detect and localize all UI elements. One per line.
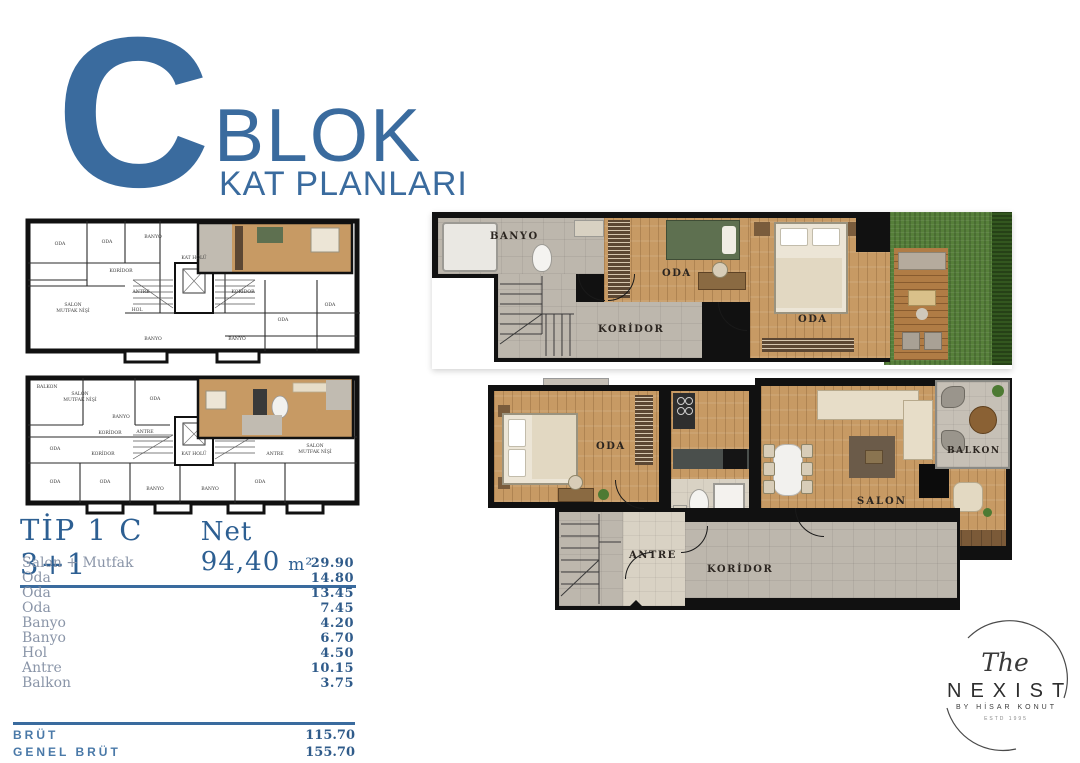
upper-banyo-floor: BANYO [438,218,604,274]
lower-oda-label: ODA [596,441,626,452]
keyplan2-label-salon2-b: MUTFAK NİŞİ [298,448,332,455]
lower-stairs [559,512,623,606]
stove [673,393,695,429]
dining-chair-6 [801,480,813,494]
row-name: Balkon [22,676,71,691]
keyplan2-label-koridor-b: KORİDOR [91,450,115,457]
row-value: 29.90 [311,556,354,571]
keyplan2-label-oda-d: ODA [100,479,111,485]
salon-plant [983,508,992,517]
row-value: 10.15 [311,661,354,676]
lower-bed [502,413,578,485]
keyplan2-label-antre-a: ANTRE [135,429,153,435]
balkon-plant [992,385,1004,397]
area-rows: Salon + Mutfak29.90 Oda14.80 Oda13.45 Od… [22,556,354,691]
dining-set [763,436,809,502]
keyplan1-label-banyo-b: BANYO [144,336,162,342]
keyplan1-label-koridor-a: KORİDOR [109,267,133,274]
table-row: Oda13.45 [22,586,354,601]
dining-chair-5 [801,462,813,476]
keyplan2-label-koridor-a: KORİDOR [98,429,122,436]
floorplan-sheet: C BLOK KAT PLANLARI [0,0,1080,763]
total-row-brut: BRÜT115.70 [13,728,355,745]
keyplan1-label-oda-b: ODA [102,239,113,245]
dining-chair-2 [763,462,775,476]
outdoor-sofa [898,252,946,270]
row-value: 13.45 [311,586,354,601]
lower-koridor-label: KORİDOR [707,564,773,575]
key-plan-lower-drawing: BALKON SALON MUTFAK NİŞİ ODA BANYO KORİD… [25,375,360,523]
total-value: 155.70 [305,745,355,760]
keyplan1-label-katholu: KAT HOLÜ [181,254,206,261]
terrace-deck [894,248,948,360]
total-value: 115.70 [305,728,355,743]
keyplan2-label-oda-b: ODA [50,446,61,452]
dining-chair-3 [763,480,775,494]
oda2-blanket [776,258,842,308]
burner-3 [677,407,685,415]
outdoor-pouf [916,308,928,320]
table-row: Salon + Mutfak29.90 [22,556,354,571]
keyplan1-label-oda-a: ODA [55,241,66,247]
upper-oda1-label: ODA [662,268,692,279]
table-row: Antre10.15 [22,661,354,676]
upper-stairs [498,274,576,358]
unit-plan-upper: BANYO KORİDOR [432,212,1012,369]
table-row: Banyo6.70 [22,631,354,646]
keyplan2-label-salon1: SALON [71,391,88,397]
row-name: Banyo [22,631,66,646]
keyplan1-label-banyo-a: BANYO [144,234,162,240]
oda2-wardrobe [762,338,854,352]
upper-banyo-label: BANYO [490,231,539,242]
row-value: 7.45 [320,601,354,616]
burner-4 [685,407,693,415]
entrance-arrow-icon [627,600,645,609]
totals-section: BRÜT115.70 GENEL BRÜT155.70 [13,722,355,762]
logo-established: ESTD 1995 [938,716,1072,722]
row-name: Salon + Mutfak [22,556,133,571]
row-value: 6.70 [320,631,354,646]
lower-pillow-2 [508,449,526,477]
upper-koridor-label: KORİDOR [598,324,664,335]
unit-plan-lower: ODA BANYO [485,378,1012,612]
lower-desk [558,488,594,502]
dining-chair-1 [763,444,775,458]
keyplan2-label-salon1-b: SALON [306,443,323,449]
key-plan-upper-floor: ODA ODA BANYO KORİDOR ANTRE KAT HOLÜ KOR… [25,218,360,368]
table-row: Balkon3.75 [22,676,354,691]
salon-label-1: SALON [857,496,907,507]
burner-2 [685,397,693,405]
lower-stairs-drawing [559,512,623,606]
keyplan2-label-oda-c: ODA [50,479,61,485]
keyplan1-label-salon2: MUTFAK NİŞİ [56,307,90,314]
keyplan1-label-salon1: SALON [64,302,81,308]
total-row-genel-brut: GENEL BRÜT155.70 [13,745,355,762]
rug [849,436,895,478]
oda2-pillow-1 [780,228,808,246]
oda1-bed [666,220,740,260]
lower-blanket [532,415,576,479]
oda2-nightstand-1 [754,222,770,236]
oda2-pillow-2 [812,228,840,246]
keyplan2-label-banyo-b: BANYO [146,486,164,492]
keyplan2-label-oda-a: ODA [150,396,161,402]
upper-wall-column [856,212,890,252]
keyplan1-label-banyo-c: BANYO [228,336,246,342]
table-row: Oda7.45 [22,601,354,616]
keyplan1-label-oda-d: ODA [325,302,336,308]
balkon-chair-1 [941,386,965,408]
table-row: Oda14.80 [22,571,354,586]
keyplan2-label-banyo-a: BANYO [112,414,130,420]
oda1-pillow [722,226,736,254]
hall-walls: ANTRE KORİDOR [555,508,960,610]
fireplace-block [919,464,949,498]
outdoor-table [908,290,936,306]
upper-koridor-floor: KORİDOR [576,302,702,358]
logo-script-the: The [938,648,1072,677]
logo-byline: BY HİSAR KONUT [938,704,1072,711]
kitchen-floor [671,391,749,479]
balkon-label: BALKON [947,446,1001,456]
keyplan1-label-koridor-b: KORİDOR [231,288,255,295]
block-subtitle: KAT PLANLARI [219,167,468,201]
oda1-chair [712,262,728,278]
nexist-logo: The NEXIST BY HİSAR KONUT ESTD 1995 [938,620,1072,760]
total-name: BRÜT [13,728,58,742]
row-name: Oda [22,571,51,586]
keyplan2-label-banyo-c: BANYO [201,486,219,492]
keyplan1-label-hol: HOL [132,307,143,313]
key-plan-lower-floor: BALKON SALON MUTFAK NİŞİ ODA BANYO KORİD… [25,375,360,523]
lower-wardrobe [635,395,653,465]
row-value: 14.80 [311,571,354,586]
row-value: 4.20 [320,616,354,631]
row-name: Antre [22,661,62,676]
keyplan2-label-antre-b: ANTRE [265,451,283,457]
keyplan2-label-oda-e: ODA [255,479,266,485]
bathtub [442,222,498,272]
garden-hedge [992,212,1012,365]
balkon-table [969,406,997,434]
burner-1 [677,397,685,405]
table-row: Banyo4.20 [22,616,354,631]
washbasin [574,220,604,237]
outdoor-chair-1 [902,332,920,350]
outdoor-chair-2 [924,332,942,350]
total-name: GENEL BRÜT [13,745,121,759]
lower-desk-chair [568,475,583,490]
table-row: Hol4.50 [22,646,354,661]
sofa-vertical [903,400,933,460]
fridge [723,449,747,469]
keyplan1-label-antre: ANTRE [131,289,149,295]
row-name: Hol [22,646,47,661]
row-value: 4.50 [320,646,354,661]
keyplan2-label-katholu: KAT HOLÜ [181,450,206,457]
dining-table [773,444,803,496]
keyplan1-label-oda-c: ODA [278,317,289,323]
row-name: Oda [22,601,51,616]
row-value: 3.75 [320,676,354,691]
keyplan2-label-salon2: MUTFAK NİŞİ [63,396,97,403]
block-title: BLOK [214,98,422,173]
row-name: Oda [22,586,51,601]
keyplan2-label-balkon: BALKON [37,384,58,390]
dining-chair-4 [801,444,813,458]
block-letter: C [56,6,211,220]
balkon-floor: BALKON [935,380,1010,469]
upper-oda2-label: ODA [798,314,828,325]
lower-plant [598,489,609,500]
coffee-table [865,450,883,464]
row-name: Banyo [22,616,66,631]
lower-pillow-1 [508,419,526,447]
oda2-bed [774,222,848,314]
logo-wordmark: NEXIST [938,680,1072,703]
key-plan-upper-drawing: ODA ODA BANYO KORİDOR ANTRE KAT HOLÜ KOR… [25,218,360,368]
upper-stairs-drawing [498,274,576,358]
toilet [532,244,552,272]
